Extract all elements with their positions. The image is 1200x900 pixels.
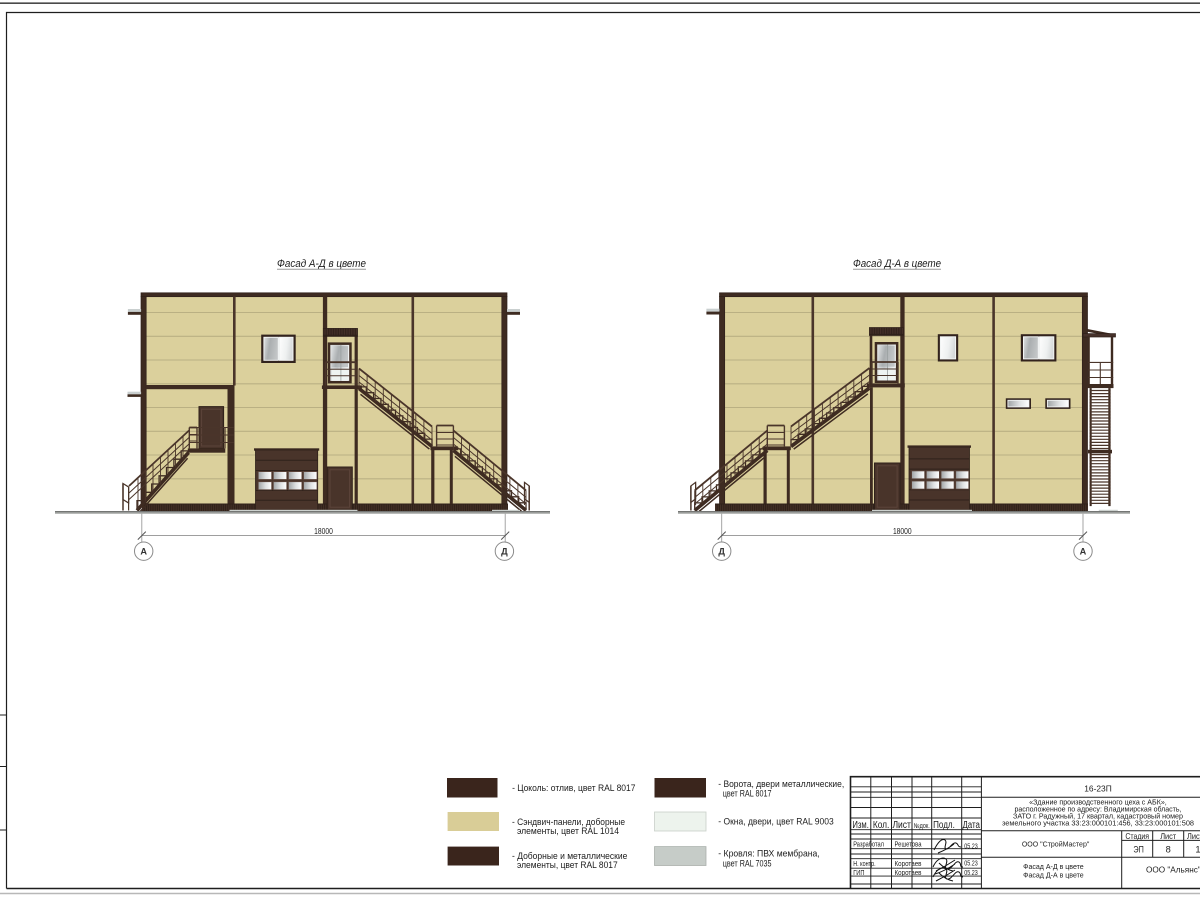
svg-text:Коротаев: Коротаев — [895, 870, 922, 877]
svg-text:Решетова: Решетова — [895, 842, 922, 849]
svg-text:расположенное по адресу: Влади: расположенное по адресу: Владимирская об… — [1015, 805, 1182, 813]
svg-text:Подл.: Подл. — [933, 820, 955, 831]
svg-text:Д: Д — [501, 546, 508, 556]
svg-text:Фасад Д-А в цвете: Фасад Д-А в цвете — [1023, 870, 1084, 879]
svg-text:Коротаев: Коротаев — [895, 861, 922, 868]
svg-text:Стадия: Стадия — [1125, 832, 1149, 841]
svg-text:ООО "СтройМастер": ООО "СтройМастер" — [1022, 839, 1090, 848]
svg-text:05.23: 05.23 — [964, 841, 978, 850]
svg-text:Н. контр.: Н. контр. — [853, 861, 876, 868]
svg-text:Фасад Д-А в цвете: Фасад Д-А в цвете — [853, 258, 941, 270]
svg-text:№док.: №док. — [914, 823, 930, 830]
svg-text:цвет RAL 7035: цвет RAL 7035 — [723, 859, 772, 869]
svg-text:земельного участка 33:23:00010: земельного участка 33:23:000101:456, 33:… — [1002, 821, 1194, 828]
svg-text:«Здание производственного цеха: «Здание производственного цеха с АБК», — [1029, 799, 1167, 806]
svg-text:8: 8 — [1166, 844, 1171, 854]
svg-text:ЗАТО г. Радужный, 17 квартал,: ЗАТО г. Радужный, 17 квартал, кадастровы… — [1013, 813, 1183, 821]
svg-text:Изм.: Изм. — [852, 820, 869, 831]
svg-text:18000: 18000 — [314, 526, 333, 536]
svg-text:Лист: Лист — [1160, 832, 1176, 841]
svg-text:- Ворота, двери металлические,: - Ворота, двери металлические, — [718, 779, 844, 789]
svg-text:05.23: 05.23 — [964, 859, 978, 868]
svg-text:16-23П: 16-23П — [1084, 783, 1112, 793]
svg-text:цвет RAL 8017: цвет RAL 8017 — [723, 789, 772, 799]
svg-text:Листов: Листов — [1187, 832, 1200, 841]
svg-text:ООО "Альянс": ООО "Альянс" — [1146, 866, 1200, 875]
svg-text:элементы, цвет RAL 1014: элементы, цвет RAL 1014 — [517, 826, 619, 836]
svg-text:Лист: Лист — [892, 820, 911, 831]
svg-text:1: 1 — [1195, 844, 1200, 854]
svg-text:18000: 18000 — [893, 526, 912, 536]
svg-text:Дата: Дата — [962, 820, 980, 831]
svg-text:- Окна, двери, цвет RAL 9003: - Окна, двери, цвет RAL 9003 — [718, 817, 833, 827]
svg-text:ЭП: ЭП — [1133, 844, 1143, 854]
svg-text:- Цоколь: отлив, цвет RAL 8017: - Цоколь: отлив, цвет RAL 8017 — [512, 783, 635, 793]
svg-text:Разработал: Разработал — [853, 841, 884, 849]
svg-text:элементы, цвет RAL 8017: элементы, цвет RAL 8017 — [517, 860, 618, 870]
svg-text:05.23: 05.23 — [964, 868, 978, 877]
svg-text:- Кровля: ПВХ мембрана,: - Кровля: ПВХ мембрана, — [718, 849, 819, 859]
svg-text:Фасад А-Д в цвете: Фасад А-Д в цвете — [277, 258, 366, 270]
svg-text:А: А — [140, 546, 147, 556]
svg-text:А: А — [1080, 546, 1087, 556]
svg-text:Кол.: Кол. — [873, 820, 890, 831]
svg-text:Д: Д — [718, 546, 725, 556]
svg-text:ГИП: ГИП — [853, 870, 864, 877]
